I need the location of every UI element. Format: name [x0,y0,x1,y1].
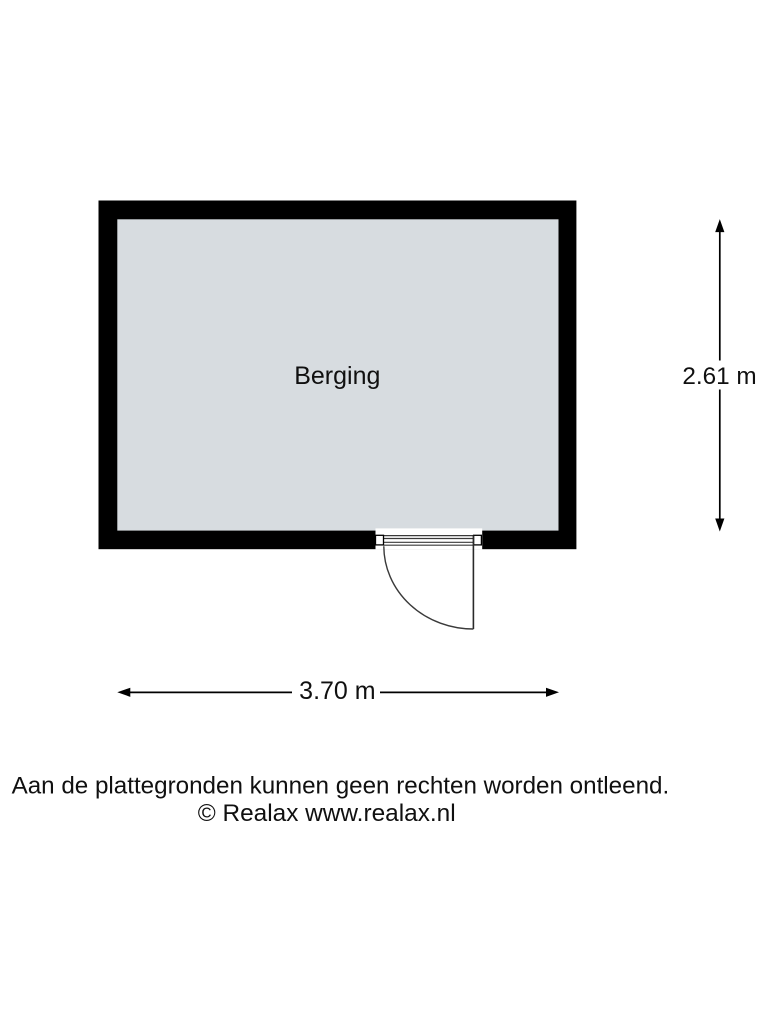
svg-text:© Realax www.realax.nl: © Realax www.realax.nl [198,800,456,827]
svg-text:2.61 m: 2.61 m [682,363,756,390]
svg-text:Aan de plattegronden kunnen ge: Aan de plattegronden kunnen geen rechten… [12,773,670,800]
svg-text:3.70 m: 3.70 m [299,677,375,705]
svg-text:Berging: Berging [294,362,380,390]
